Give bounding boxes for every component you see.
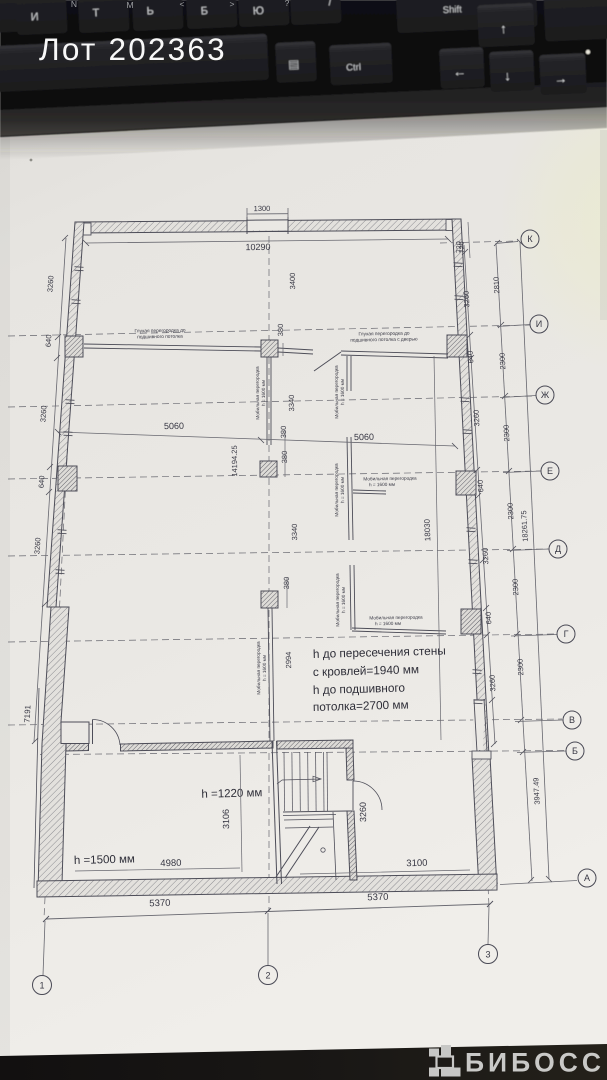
svg-text:1300: 1300: [254, 204, 271, 213]
svg-text:2300: 2300: [502, 425, 512, 442]
svg-text:→: →: [554, 71, 568, 87]
svg-text:h = 1600 мм: h = 1600 мм: [261, 380, 266, 406]
svg-text:5370: 5370: [367, 892, 389, 904]
svg-text:Shift: Shift: [443, 4, 463, 16]
svg-text:Б: Б: [572, 746, 578, 756]
svg-text:Мобильная перегородка: Мобильная перегородка: [334, 365, 339, 419]
svg-text:640: 640: [484, 612, 494, 625]
svg-text:3260: 3260: [462, 291, 472, 308]
svg-text:Ctrl: Ctrl: [346, 62, 361, 74]
svg-text:В: В: [569, 715, 575, 725]
svg-text:?: ?: [285, 0, 290, 8]
svg-text:18030: 18030: [423, 518, 433, 541]
svg-text:640: 640: [476, 480, 486, 493]
svg-text:↓: ↓: [504, 68, 511, 83]
svg-text:10290: 10290: [245, 242, 270, 252]
svg-text:3100: 3100: [406, 858, 427, 870]
svg-text:14194.25: 14194.25: [230, 445, 239, 476]
svg-text:h = 1600 мм: h = 1600 мм: [340, 379, 345, 405]
svg-text:И: И: [30, 11, 38, 23]
svg-text:▤: ▤: [288, 57, 300, 72]
svg-text:3260: 3260: [472, 410, 482, 427]
svg-text:3260: 3260: [358, 802, 368, 822]
svg-text:Глухая перегородка до: Глухая перегородка до: [134, 328, 186, 335]
svg-text:h = 1600 мм: h = 1600 мм: [375, 621, 401, 626]
svg-text:7191: 7191: [23, 704, 33, 723]
svg-text:1: 1: [39, 981, 44, 991]
svg-text:Т: Т: [92, 7, 100, 19]
svg-text:3260: 3260: [488, 675, 498, 692]
svg-text:h = 1600 мм: h = 1600 мм: [341, 587, 346, 613]
svg-text:>: >: [230, 0, 235, 9]
svg-text:Ь: Ь: [146, 5, 154, 17]
svg-text:подшивного потолка: подшивного потолка: [137, 335, 183, 341]
svg-text:потолка=2700 мм: потолка=2700 мм: [313, 697, 409, 714]
svg-text:18261.75: 18261.75: [519, 510, 530, 542]
svg-text:640: 640: [37, 475, 47, 488]
svg-text:3260: 3260: [481, 548, 491, 565]
svg-text:h = 1600 мм: h = 1600 мм: [340, 477, 345, 503]
svg-text:Мобильная перегородка: Мобильная перегородка: [363, 476, 417, 482]
svg-text:2300: 2300: [516, 659, 526, 676]
svg-text:380: 380: [276, 324, 285, 337]
svg-text:3260: 3260: [32, 537, 42, 554]
svg-text:2300: 2300: [511, 579, 521, 596]
svg-text:Глухая перегородка до: Глухая перегородка до: [358, 331, 410, 338]
svg-text:Мобильная перегородка: Мобильная перегородка: [335, 573, 340, 627]
svg-text:Б: Б: [200, 5, 208, 17]
svg-text:4980: 4980: [160, 858, 181, 870]
svg-text:3340: 3340: [287, 395, 296, 412]
svg-text:h = 1600 мм: h = 1600 мм: [262, 655, 267, 681]
svg-text:2810: 2810: [492, 277, 502, 294]
svg-text:<: <: [180, 0, 185, 9]
svg-text:5370: 5370: [149, 898, 171, 910]
svg-text:N: N: [71, 0, 77, 9]
svg-text:Е: Е: [547, 466, 553, 476]
svg-text:Мобильная перегородка: Мобильная перегородка: [255, 366, 260, 420]
svg-text:А: А: [584, 873, 590, 883]
svg-text:3260: 3260: [45, 275, 55, 292]
svg-text:3400: 3400: [288, 273, 297, 290]
svg-text:640: 640: [44, 334, 54, 347]
svg-text:5060: 5060: [164, 421, 184, 431]
svg-text:3: 3: [485, 950, 490, 960]
svg-text:3947.49: 3947.49: [531, 777, 541, 805]
svg-text:↑: ↑: [500, 21, 507, 36]
svg-text:И: И: [536, 319, 542, 329]
svg-text:h до подшивного: h до подшивного: [313, 681, 406, 697]
svg-text:720: 720: [456, 241, 464, 253]
svg-text:h = 1600 мм: h = 1600 мм: [369, 482, 395, 487]
svg-text:К: К: [527, 234, 533, 244]
svg-text:с кровлей=1940 мм: с кровлей=1940 мм: [313, 662, 419, 679]
svg-text:380: 380: [280, 451, 289, 464]
svg-text:3106: 3106: [221, 809, 231, 829]
svg-text:Мобильная перегородка: Мобильная перегородка: [256, 641, 261, 695]
svg-text:Мобильная перегородка: Мобильная перегородка: [334, 463, 339, 517]
svg-text:БИБОСС: БИБОСС: [465, 1048, 605, 1078]
svg-text:Мобильная перегородка: Мобильная перегородка: [369, 615, 423, 621]
svg-text:2: 2: [265, 971, 270, 981]
svg-text:Лот 202363: Лот 202363: [39, 31, 227, 67]
svg-text:Ю: Ю: [253, 5, 265, 17]
svg-text:h =1220 мм: h =1220 мм: [201, 787, 262, 801]
svg-text:640: 640: [466, 351, 476, 364]
svg-text:h =1500 мм: h =1500 мм: [74, 853, 135, 867]
svg-text:3260: 3260: [38, 405, 48, 422]
svg-text:Ж: Ж: [541, 390, 550, 400]
svg-text:5060: 5060: [354, 432, 374, 442]
svg-text:2300: 2300: [498, 353, 508, 370]
svg-text:380: 380: [282, 577, 291, 590]
svg-text:←: ←: [453, 64, 467, 80]
svg-text:3340: 3340: [290, 524, 299, 541]
svg-text:2994: 2994: [284, 652, 293, 669]
svg-text:M: M: [126, 0, 133, 10]
svg-text:Г: Г: [564, 629, 569, 639]
svg-text:Д: Д: [555, 544, 561, 554]
svg-text:380: 380: [279, 426, 288, 439]
svg-text:2300: 2300: [506, 503, 516, 520]
